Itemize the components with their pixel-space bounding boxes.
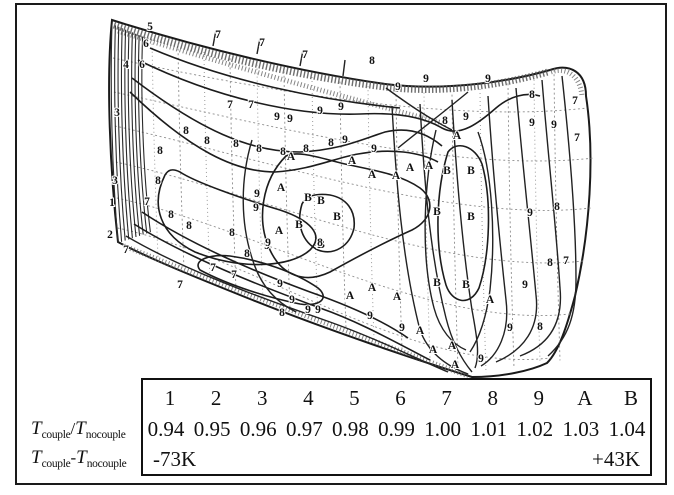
contour-level-label: B — [317, 195, 325, 207]
contour-level-label: 3 — [114, 107, 120, 119]
contour-level-label: 8 — [186, 220, 192, 232]
ratio-sub2: nocouple — [86, 429, 126, 441]
contour-level-label: 9 — [529, 117, 535, 129]
blade-outline-path — [109, 20, 590, 377]
contour-level-label: 7 — [563, 255, 569, 267]
left-dense-contours — [111, 24, 150, 243]
contour-level-label: 8 — [442, 115, 448, 127]
contour-level-label: 7 — [177, 279, 183, 291]
legend-level-cell: 9 — [516, 388, 562, 409]
contour-level-label: 7 — [248, 99, 254, 111]
contour-level-label: 5 — [147, 21, 153, 33]
legend-level-cell: 7 — [424, 388, 470, 409]
legend-level-cell: 2 — [193, 388, 239, 409]
contour-level-label: A — [416, 325, 425, 337]
legend-level-cell: A — [562, 388, 608, 409]
contour-level-label: 9 — [277, 278, 283, 290]
contour-level-label: A — [277, 182, 286, 194]
contour-level-label: 9 — [395, 81, 401, 93]
contour-level-label: A — [429, 344, 438, 356]
delta-sub2: nocouple — [87, 458, 127, 470]
legend-ratio-cell: 0.95 — [189, 419, 235, 440]
contour-level-label: B — [433, 206, 441, 218]
contour-level-label: 7 — [144, 196, 150, 208]
contour-level-label: 8 — [303, 143, 309, 155]
contour-level-label: 8 — [279, 307, 285, 319]
contour-level-label: B — [304, 192, 312, 204]
contour-level-label: A — [448, 340, 457, 352]
contour-level-label: 9 — [253, 202, 259, 214]
legend-ratio-cell: 0.94 — [143, 419, 189, 440]
contour-level-label: 8 — [183, 125, 189, 137]
contour-level-label: 7 — [227, 99, 233, 111]
contour-level-label: 8 — [369, 55, 375, 67]
contour-level-label: 8 — [256, 143, 262, 155]
legend-ratio-cell: 1.04 — [604, 419, 650, 440]
legend-level-cell: 6 — [377, 388, 423, 409]
contour-level-label: A — [406, 162, 415, 174]
contour-level-label: A — [425, 160, 434, 172]
legend-table: 123456789AB 0.940.950.960.970.980.991.00… — [141, 378, 652, 476]
contour-level-label: 9 — [338, 101, 344, 113]
contour-level-label: 9 — [507, 322, 513, 334]
ratio-T2: T — [75, 418, 86, 439]
contour-level-label: A — [486, 294, 495, 306]
contour-level-label: 8 — [157, 145, 163, 157]
delta-min: -73K — [153, 447, 196, 472]
contour-level-label: A — [368, 169, 377, 181]
contour-level-label: 8 — [233, 138, 239, 150]
legend-level-cell: 3 — [239, 388, 285, 409]
contour-level-label: 9 — [463, 111, 469, 123]
contour-level-label: B — [433, 277, 441, 289]
contour-level-label: A — [453, 130, 462, 142]
contour-level-label: 7 — [574, 132, 580, 144]
contour-level-label: 4 — [123, 59, 129, 71]
contour-level-label: 9 — [289, 294, 295, 306]
contour-level-label: 2 — [107, 229, 113, 241]
contour-level-label: 1 — [109, 197, 115, 209]
mesh-grid — [113, 36, 594, 373]
contour-level-label: A — [392, 170, 401, 182]
legend-level-cell: 8 — [470, 388, 516, 409]
contour-level-label: A — [348, 155, 357, 167]
contour-level-label: 9 — [485, 73, 491, 85]
contour-level-label: 7 — [215, 29, 221, 41]
legend-ratio-cell: 1.00 — [420, 419, 466, 440]
contour-level-label: 8 — [244, 248, 250, 260]
contour-level-label: B — [295, 219, 303, 231]
legend-level-cell: B — [608, 388, 654, 409]
contour-level-label: B — [443, 165, 451, 177]
contour-level-label: 8 — [328, 137, 334, 149]
legend-level-cell: 1 — [147, 388, 193, 409]
contour-level-label: B — [462, 279, 470, 291]
delta-row-label: Tcouple-Tnocouple — [31, 443, 143, 472]
contour-level-label: 8 — [229, 227, 235, 239]
contour-level-label: 7 — [231, 269, 237, 281]
legend-ratio-cell: 1.03 — [558, 419, 604, 440]
contour-level-label: A — [393, 291, 402, 303]
legend-level-cell: 5 — [331, 388, 377, 409]
contour-level-label: A — [451, 359, 460, 371]
contour-level-label: 9 — [274, 111, 280, 123]
contour-level-label: 7 — [572, 95, 578, 107]
contour-level-label: 9 — [287, 113, 293, 125]
contour-level-label: 8 — [155, 175, 161, 187]
legend-ratio-cell: 0.98 — [327, 419, 373, 440]
contour-level-label: 9 — [527, 207, 533, 219]
legend-ratio-cell: 0.99 — [373, 419, 419, 440]
contour-level-label: 9 — [317, 105, 323, 117]
contour-level-label: A — [275, 225, 284, 237]
figure: 5664331278888887777788888999989998797989… — [0, 0, 674, 495]
ratio-sub1: couple — [42, 429, 71, 441]
legend-level-cell: 4 — [285, 388, 331, 409]
contour-level-label: 9 — [551, 119, 557, 131]
contour-level-label: 9 — [522, 279, 528, 291]
contour-level-label: A — [368, 282, 377, 294]
contour-level-label: 8 — [168, 209, 174, 221]
contour-level-label: 8 — [537, 321, 543, 333]
contour-level-label: 7 — [302, 49, 308, 61]
legend-delta-row: -73K +43K — [143, 444, 650, 474]
contour-level-label: 8 — [529, 89, 535, 101]
contour-level-label: 7 — [210, 262, 216, 274]
ratio-row-label: Tcouple/Tnocouple — [31, 414, 143, 443]
contour-level-label: 7 — [123, 244, 129, 256]
contour-level-label: 9 — [342, 134, 348, 146]
contour-level-label: 9 — [423, 73, 429, 85]
contour-level-label: B — [467, 165, 475, 177]
legend-values-row: 0.940.950.960.970.980.991.001.011.021.03… — [143, 415, 650, 444]
delta-sub1: couple — [42, 458, 71, 470]
ratio-T1: T — [31, 418, 42, 439]
delta-T1: T — [31, 447, 42, 468]
contour-level-label: 6 — [139, 59, 145, 71]
contour-level-label: A — [287, 151, 296, 163]
legend-row-labels: Tcouple/Tnocouple Tcouple-Tnocouple — [31, 414, 143, 472]
contour-level-label: 9 — [254, 188, 260, 200]
delta-max: +43K — [592, 447, 640, 472]
contour-level-label: 6 — [143, 38, 149, 50]
contour-level-label: 8 — [317, 237, 323, 249]
contour-level-label: 8 — [547, 257, 553, 269]
contour-level-label: B — [333, 211, 341, 223]
contour-level-label: 8 — [204, 135, 210, 147]
contour-level-label: 8 — [554, 201, 560, 213]
contour-level-label: 9 — [478, 353, 484, 365]
legend-ratio-cell: 1.01 — [466, 419, 512, 440]
contour-level-label: B — [467, 211, 475, 223]
contour-level-label: 9 — [305, 304, 311, 316]
contour-level-label: 9 — [371, 143, 377, 155]
blade-outline — [109, 20, 590, 377]
legend-ratio-cell: 0.97 — [281, 419, 327, 440]
contour-level-label: 9 — [399, 322, 405, 334]
contour-level-label: 3 — [112, 175, 118, 187]
contour-level-label: 9 — [367, 310, 373, 322]
legend-ratio-cell: 0.96 — [235, 419, 281, 440]
contour-level-label: A — [346, 290, 355, 302]
contour-level-label: 8 — [280, 146, 286, 158]
contour-level-label: 9 — [315, 304, 321, 316]
delta-T2: T — [76, 447, 87, 468]
contour-level-label: 9 — [265, 237, 271, 249]
legend-ratio-cell: 1.02 — [512, 419, 558, 440]
legend-header-row: 123456789AB — [143, 380, 650, 415]
contour-level-label: 7 — [259, 37, 265, 49]
